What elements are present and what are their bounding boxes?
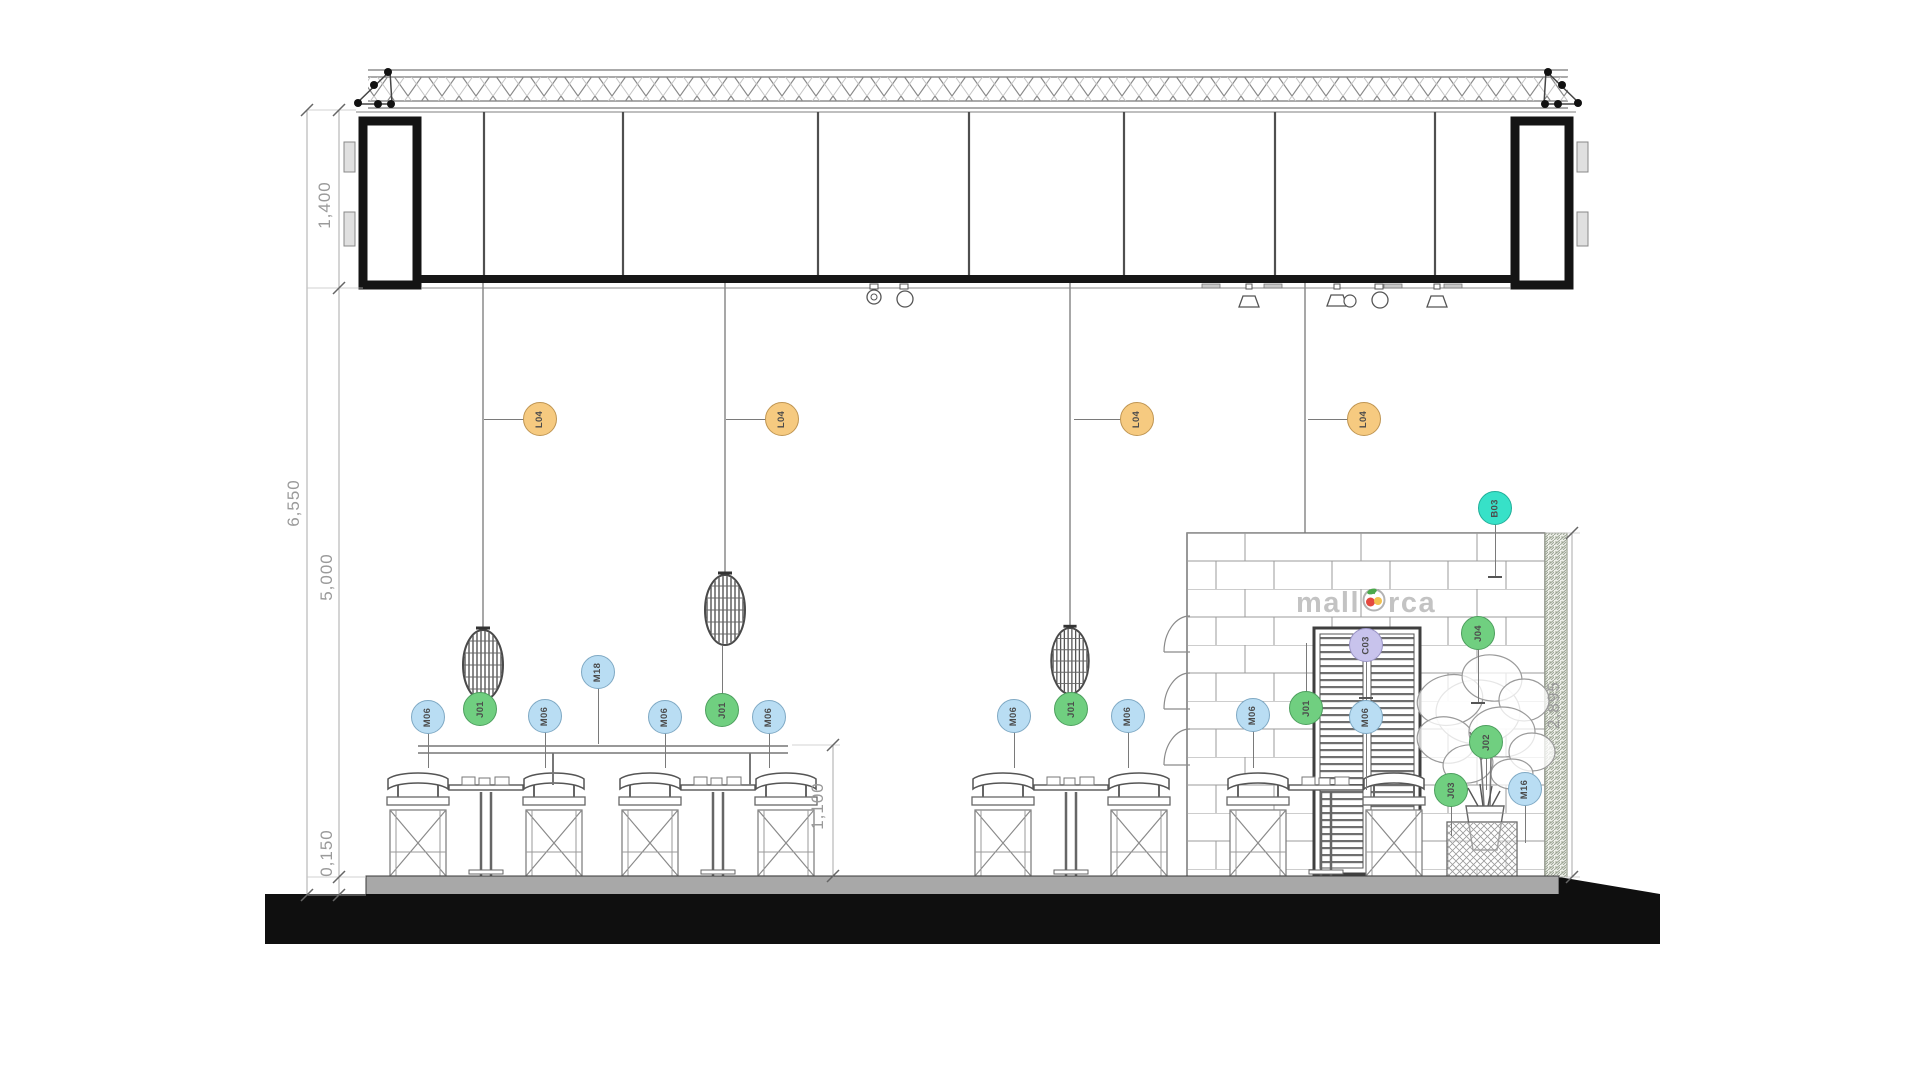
- tag-label: J04: [1472, 625, 1483, 642]
- leader-tick: [1471, 702, 1485, 704]
- dimension-label: 2,895: [1544, 660, 1564, 750]
- tag-M16: M16: [1508, 772, 1542, 806]
- tag-label: M06: [1247, 705, 1258, 724]
- tag-label: J01: [1300, 700, 1311, 717]
- left-column: [363, 121, 417, 285]
- tag-label: M06: [659, 707, 670, 726]
- tag-label: M06: [763, 707, 774, 726]
- tag-J01: J01: [1054, 692, 1088, 726]
- tag-label: J01: [716, 702, 727, 719]
- leader-line: [484, 419, 524, 420]
- tag-M06: M06: [752, 700, 786, 734]
- dimension-label: 1,400: [315, 160, 335, 250]
- tag-J02: J02: [1469, 725, 1503, 759]
- ceiling-structure: [344, 112, 1588, 288]
- tag-L04: L04: [1347, 402, 1381, 436]
- tag-M06: M06: [648, 700, 682, 734]
- leader-line: [722, 646, 723, 694]
- tag-M06: M06: [411, 700, 445, 734]
- tag-J03: J03: [1434, 773, 1468, 807]
- leader-line: [1308, 419, 1348, 420]
- tag-M06: M06: [1236, 698, 1270, 732]
- leader-line: [1525, 805, 1526, 843]
- leader-line: [1495, 524, 1496, 577]
- dimension-label: 5,000: [317, 532, 337, 622]
- tag-label: M06: [1360, 707, 1371, 726]
- tag-J04: J04: [1461, 616, 1495, 650]
- tag-label: M06: [422, 707, 433, 726]
- sign-text-post: rca: [1388, 587, 1436, 620]
- tag-M06: M06: [1349, 700, 1383, 734]
- leader-line: [428, 733, 429, 768]
- dimension-label: 0,150: [317, 808, 337, 898]
- leader-line: [1074, 419, 1121, 420]
- leader-line: [1253, 731, 1254, 768]
- tag-J01: J01: [1289, 691, 1323, 725]
- tag-label: L04: [1132, 410, 1143, 427]
- leader-line: [1306, 643, 1307, 692]
- mallorca-sign: mall rca: [1296, 586, 1466, 620]
- leader-tick: [1488, 576, 1502, 578]
- tag-label: M16: [1519, 779, 1530, 798]
- tag-M18: M18: [581, 655, 615, 689]
- floor: [265, 876, 1660, 944]
- tag-label: M18: [592, 662, 603, 681]
- leader-line: [726, 419, 766, 420]
- tag-M06: M06: [1111, 699, 1145, 733]
- elevation-drawing: mall rca L04L04L04L04J01J01J01J01M06M06M…: [0, 0, 1920, 1080]
- tag-label: L04: [1359, 410, 1370, 427]
- dimension-label: 1,100: [808, 761, 828, 851]
- leader-line: [1366, 733, 1367, 790]
- leader-line: [1486, 758, 1487, 790]
- tag-L04: L04: [523, 402, 557, 436]
- leader-line: [769, 733, 770, 768]
- tag-label: L04: [535, 410, 546, 427]
- roof-truss: [354, 68, 1582, 108]
- tag-J01: J01: [463, 692, 497, 726]
- tag-label: L04: [777, 410, 788, 427]
- tag-C03: C03: [1349, 628, 1383, 662]
- leader-line: [1478, 649, 1479, 703]
- tag-label: M06: [539, 706, 550, 725]
- tag-label: M06: [1122, 706, 1133, 725]
- leader-line: [1366, 661, 1367, 701]
- dimension-label: 6,550: [284, 458, 304, 548]
- right-column: [1515, 121, 1569, 285]
- leader-line: [598, 688, 599, 744]
- tag-L04: L04: [765, 402, 799, 436]
- leader-line: [1128, 732, 1129, 768]
- tomato-icon: [1361, 586, 1387, 620]
- leader-tick: [1359, 697, 1373, 699]
- tag-label: J03: [1445, 782, 1456, 799]
- tag-M06: M06: [997, 699, 1031, 733]
- leader-line: [545, 732, 546, 768]
- tag-label: J01: [1065, 701, 1076, 718]
- tag-label: J02: [1480, 734, 1491, 751]
- tag-label: B03: [1489, 499, 1500, 517]
- tag-label: J01: [474, 701, 485, 718]
- leader-line: [665, 733, 666, 768]
- tag-J01: J01: [705, 693, 739, 727]
- tag-label: M06: [1008, 706, 1019, 725]
- tag-L04: L04: [1120, 402, 1154, 436]
- leader-line: [1014, 732, 1015, 768]
- sign-text-pre: mall: [1296, 587, 1360, 620]
- tag-M06: M06: [528, 699, 562, 733]
- pendant-cords: [483, 283, 1305, 630]
- tag-B03: B03: [1478, 491, 1512, 525]
- tag-label: C03: [1360, 636, 1371, 654]
- leader-line: [1451, 806, 1452, 836]
- ceiling-track: [421, 275, 1511, 283]
